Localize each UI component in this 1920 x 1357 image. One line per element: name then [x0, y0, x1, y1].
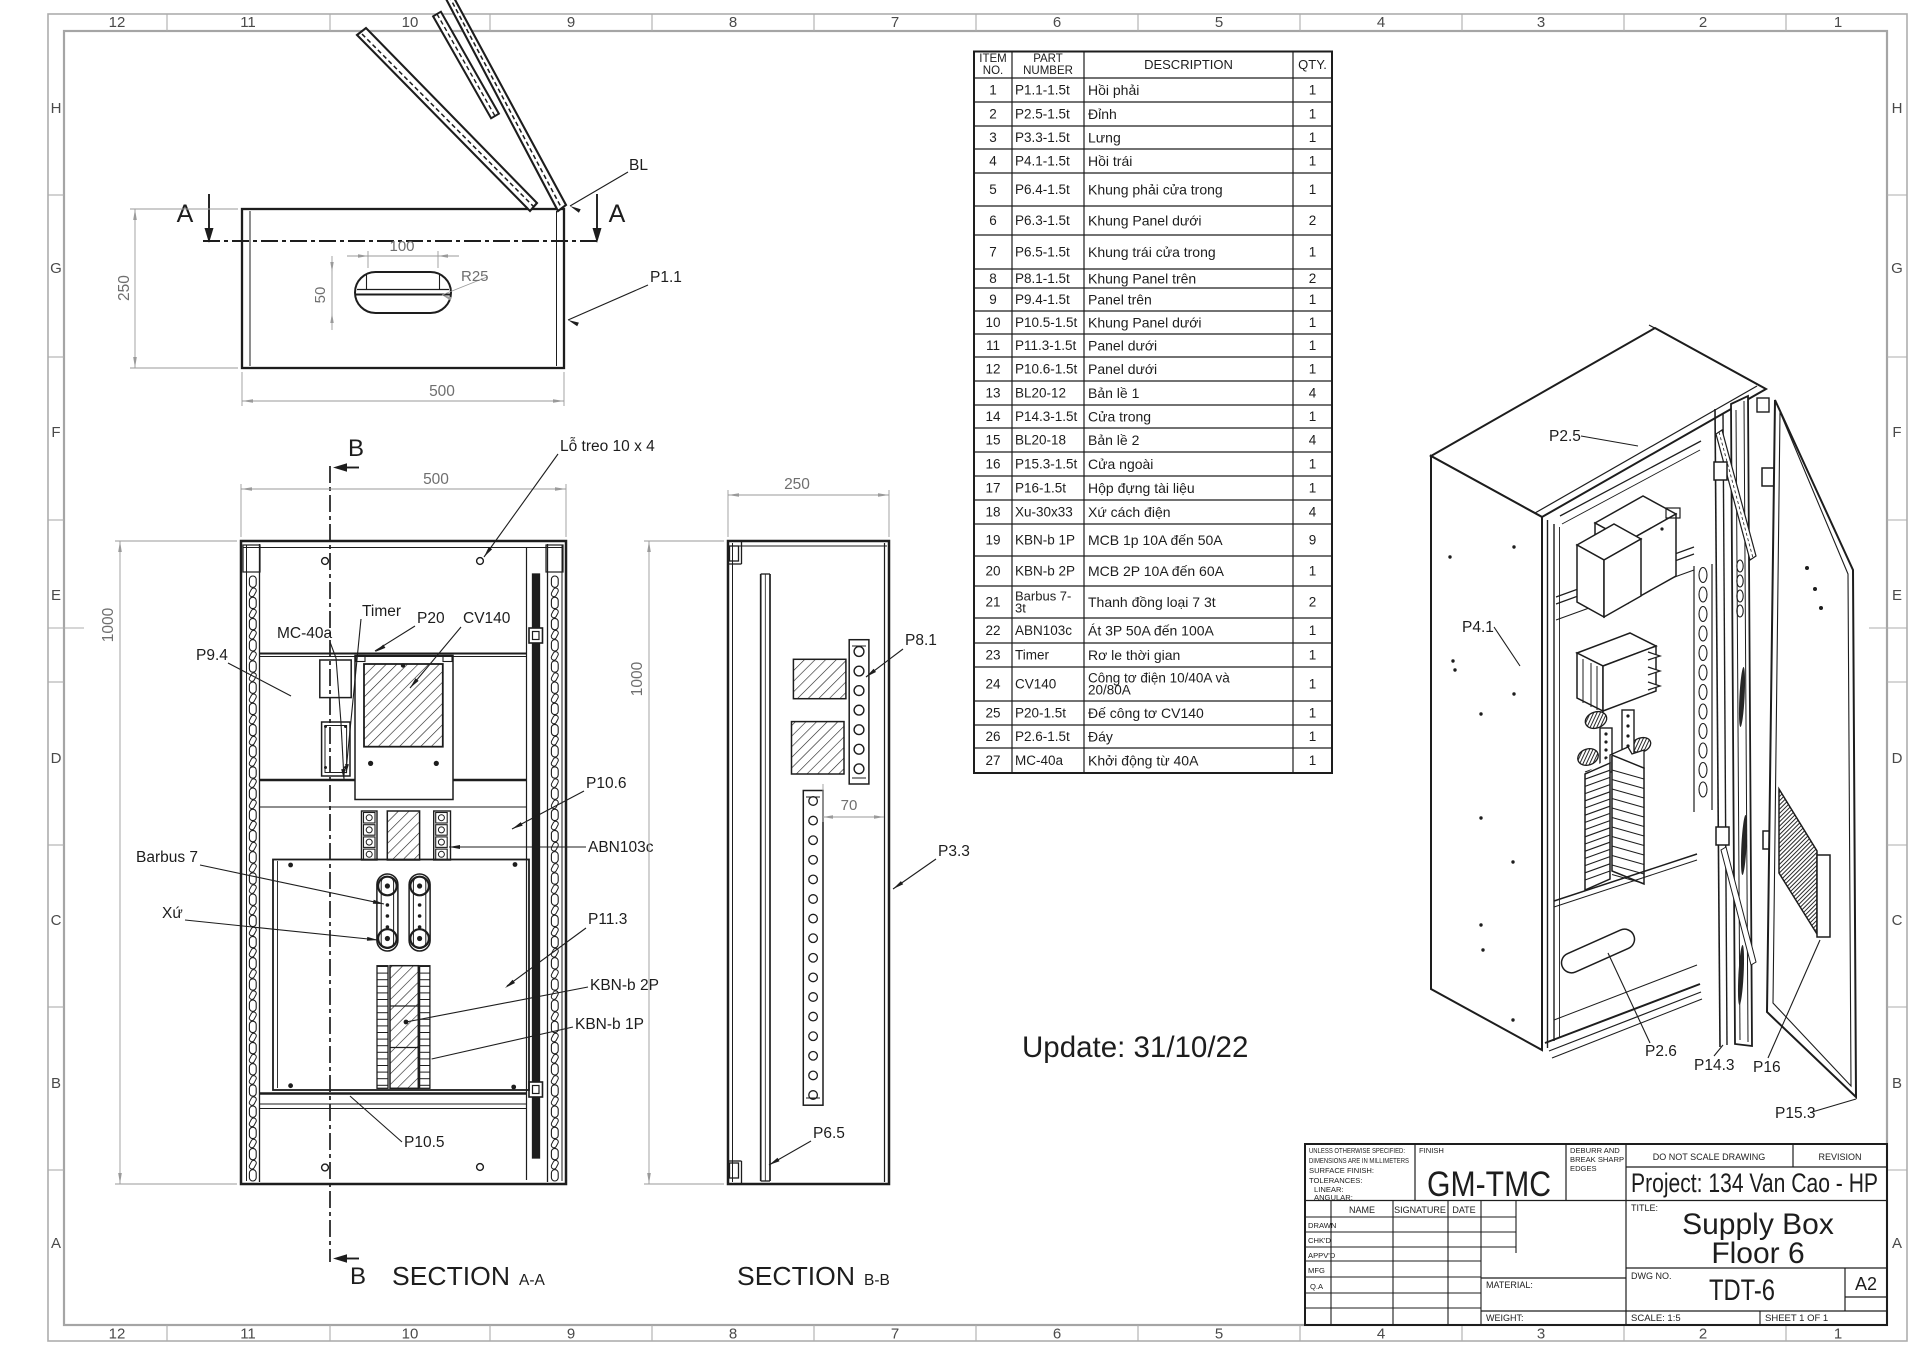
svg-text:Khởi động từ 40A: Khởi động từ 40A	[1088, 752, 1199, 768]
svg-text:P8.1-1.5t: P8.1-1.5t	[1015, 271, 1070, 286]
svg-text:P1.1-1.5t: P1.1-1.5t	[1015, 83, 1070, 98]
svg-text:8: 8	[729, 14, 737, 31]
svg-text:P9.4: P9.4	[196, 647, 228, 664]
svg-text:NUMBER: NUMBER	[1023, 65, 1073, 77]
svg-text:15: 15	[985, 433, 1000, 448]
svg-text:SHEET 1 OF 1: SHEET 1 OF 1	[1765, 1313, 1828, 1324]
svg-text:Át 3P 50A đến 100A: Át 3P 50A đến 100A	[1088, 622, 1215, 638]
svg-text:E: E	[1892, 587, 1902, 604]
svg-text:Lưng: Lưng	[1088, 129, 1121, 145]
svg-text:Project: 134 Van Cao - HP: Project: 134 Van Cao - HP	[1631, 1168, 1878, 1198]
svg-text:70: 70	[841, 797, 858, 814]
svg-text:B: B	[1892, 1075, 1902, 1092]
svg-text:250: 250	[116, 275, 133, 301]
svg-text:500: 500	[429, 383, 455, 400]
svg-text:P6.4-1.5t: P6.4-1.5t	[1015, 182, 1070, 197]
svg-text:P4.1-1.5t: P4.1-1.5t	[1015, 154, 1070, 169]
svg-text:17: 17	[985, 481, 1000, 496]
svg-text:Khung phải cửa trong: Khung phải cửa trong	[1088, 181, 1223, 197]
svg-text:Bản lề 1: Bản lề 1	[1088, 385, 1140, 401]
svg-text:GM-TMC: GM-TMC	[1427, 1165, 1551, 1204]
svg-text:P10.5-1.5t: P10.5-1.5t	[1015, 315, 1078, 330]
svg-text:G: G	[50, 260, 62, 277]
svg-text:500: 500	[423, 471, 449, 488]
svg-text:WEIGHT:: WEIGHT:	[1486, 1313, 1524, 1323]
svg-text:BL20-12: BL20-12	[1015, 386, 1066, 401]
svg-text:FINISH: FINISH	[1419, 1146, 1444, 1155]
svg-text:10: 10	[402, 1326, 419, 1343]
svg-text:2: 2	[1699, 1326, 1707, 1343]
svg-text:1: 1	[1309, 409, 1317, 424]
svg-text:TITLE:: TITLE:	[1631, 1203, 1658, 1213]
svg-text:1: 1	[1309, 315, 1317, 330]
svg-text:5: 5	[1215, 1326, 1223, 1343]
svg-text:25: 25	[985, 706, 1000, 721]
svg-text:Hồi trái: Hồi trái	[1088, 153, 1132, 169]
svg-text:10: 10	[985, 315, 1000, 330]
svg-text:ITEM: ITEM	[979, 53, 1006, 65]
svg-text:DO NOT SCALE DRAWING: DO NOT SCALE DRAWING	[1653, 1152, 1766, 1162]
svg-text:1: 1	[1309, 753, 1317, 768]
svg-text:22: 22	[985, 623, 1000, 638]
svg-text:9: 9	[989, 292, 997, 307]
svg-text:2: 2	[1309, 271, 1317, 286]
svg-text:F: F	[51, 424, 60, 441]
svg-text:12: 12	[109, 1326, 126, 1343]
svg-text:EDGES: EDGES	[1570, 1164, 1597, 1173]
svg-text:1: 1	[1309, 362, 1317, 377]
svg-text:Đáy: Đáy	[1088, 728, 1113, 744]
svg-text:P16-1.5t: P16-1.5t	[1015, 481, 1066, 496]
svg-text:50: 50	[312, 287, 329, 304]
svg-text:P2.5: P2.5	[1549, 428, 1581, 445]
svg-text:9: 9	[1309, 533, 1317, 548]
svg-text:6: 6	[1053, 14, 1061, 31]
svg-text:SIGNATURE: SIGNATURE	[1394, 1205, 1446, 1215]
svg-text:A: A	[609, 200, 626, 228]
svg-text:Panel trên: Panel trên	[1088, 291, 1152, 307]
svg-text:1: 1	[1309, 83, 1317, 98]
svg-text:NAME: NAME	[1349, 1205, 1375, 1215]
svg-text:26: 26	[985, 729, 1000, 744]
svg-text:20/80A: 20/80A	[1088, 683, 1131, 698]
svg-text:H: H	[51, 100, 62, 117]
svg-text:DIMENSIONS ARE IN MILLIMETERS: DIMENSIONS ARE IN MILLIMETERS	[1309, 1156, 1409, 1165]
svg-text:1: 1	[1309, 245, 1317, 260]
svg-text:KBN-b 2P: KBN-b 2P	[1015, 564, 1075, 579]
svg-text:DESCRIPTION: DESCRIPTION	[1144, 57, 1233, 72]
svg-text:G: G	[1891, 260, 1903, 277]
svg-text:Hồi phải: Hồi phải	[1088, 82, 1139, 98]
svg-text:Khung Panel dưới: Khung Panel dưới	[1088, 314, 1202, 330]
svg-text:Cửa ngoài: Cửa ngoài	[1088, 456, 1153, 472]
svg-text:A: A	[1892, 1235, 1902, 1252]
svg-text:4: 4	[1309, 433, 1317, 448]
svg-text:7: 7	[891, 14, 899, 31]
svg-text:MCB 2P 10A đến 60A: MCB 2P 10A đến 60A	[1088, 563, 1225, 579]
svg-text:MCB 1p 10A đến 50A: MCB 1p 10A đến 50A	[1088, 532, 1223, 548]
svg-text:Panel dưới: Panel dưới	[1088, 361, 1157, 377]
svg-text:MATERIAL:: MATERIAL:	[1486, 1280, 1533, 1290]
svg-text:B-B: B-B	[864, 1272, 890, 1289]
svg-text:KBN-b 1P: KBN-b 1P	[575, 1016, 644, 1033]
svg-text:1: 1	[1309, 130, 1317, 145]
svg-text:MFG: MFG	[1308, 1266, 1325, 1275]
svg-text:5: 5	[989, 182, 997, 197]
svg-text:10: 10	[402, 14, 419, 31]
svg-text:1: 1	[1309, 677, 1317, 692]
svg-text:SECTION: SECTION	[737, 1261, 855, 1291]
svg-text:NO.: NO.	[983, 65, 1003, 77]
svg-text:1: 1	[1309, 292, 1317, 307]
svg-text:Bản lề 2: Bản lề 2	[1088, 432, 1140, 448]
svg-text:Lỗ treo 10 x 4: Lỗ treo 10 x 4	[560, 438, 655, 455]
svg-text:12: 12	[109, 14, 126, 31]
svg-text:R25: R25	[461, 268, 489, 285]
svg-text:8: 8	[989, 271, 997, 286]
svg-text:1: 1	[1309, 338, 1317, 353]
svg-text:3: 3	[989, 130, 997, 145]
svg-text:11: 11	[240, 14, 256, 31]
svg-text:D: D	[51, 750, 62, 767]
svg-text:APPV'D: APPV'D	[1308, 1251, 1336, 1260]
svg-text:18: 18	[985, 505, 1000, 520]
svg-text:P2.6: P2.6	[1645, 1043, 1677, 1060]
svg-text:3t: 3t	[1015, 601, 1026, 616]
svg-text:SCALE: 1:5: SCALE: 1:5	[1631, 1313, 1681, 1324]
svg-text:Hộp đựng tài liệu: Hộp đựng tài liệu	[1088, 480, 1195, 496]
svg-text:Timer: Timer	[1015, 648, 1049, 663]
svg-text:BREAK SHARP: BREAK SHARP	[1570, 1155, 1624, 1164]
svg-text:Update: 31/10/22: Update: 31/10/22	[1022, 1031, 1248, 1064]
svg-text:CV140: CV140	[1015, 677, 1056, 692]
svg-text:9: 9	[567, 1326, 575, 1343]
svg-text:B: B	[350, 1263, 366, 1290]
svg-text:SECTION: SECTION	[392, 1261, 510, 1291]
svg-text:MC-40a: MC-40a	[277, 625, 333, 642]
svg-text:P11.3: P11.3	[588, 911, 627, 928]
svg-text:P3.3-1.5t: P3.3-1.5t	[1015, 130, 1070, 145]
svg-text:7: 7	[891, 1326, 899, 1343]
svg-text:P10.5: P10.5	[404, 1134, 445, 1151]
svg-text:REVISION: REVISION	[1818, 1152, 1861, 1162]
svg-text:P10.6: P10.6	[586, 775, 627, 792]
svg-text:9: 9	[567, 14, 575, 31]
svg-text:1: 1	[1309, 706, 1317, 721]
svg-text:P3.3: P3.3	[938, 843, 970, 860]
svg-text:1: 1	[1309, 154, 1317, 169]
svg-text:MC-40a: MC-40a	[1015, 753, 1064, 768]
svg-text:7: 7	[989, 245, 997, 260]
svg-text:1: 1	[1834, 14, 1842, 31]
svg-text:2: 2	[1309, 213, 1317, 228]
svg-text:E: E	[51, 587, 61, 604]
svg-text:Cửa trong: Cửa trong	[1088, 408, 1151, 424]
svg-text:UNLESS OTHERWISE SPECIFIED:: UNLESS OTHERWISE SPECIFIED:	[1309, 1146, 1405, 1155]
svg-text:B: B	[51, 1075, 61, 1092]
svg-text:8: 8	[729, 1326, 737, 1343]
svg-text:2: 2	[1309, 595, 1317, 610]
svg-text:Q.A: Q.A	[1310, 1282, 1324, 1291]
svg-text:Đế công tơ CV140: Đế công tơ CV140	[1088, 705, 1204, 721]
svg-text:D: D	[1892, 750, 1903, 767]
svg-text:Floor 6: Floor 6	[1711, 1237, 1804, 1270]
svg-text:1: 1	[989, 83, 997, 98]
svg-text:11: 11	[240, 1326, 256, 1343]
svg-text:TOLERANCES:: TOLERANCES:	[1309, 1176, 1362, 1185]
svg-text:B: B	[348, 435, 364, 462]
svg-text:1: 1	[1309, 457, 1317, 472]
svg-text:5: 5	[1215, 14, 1223, 31]
svg-text:C: C	[1892, 912, 1903, 929]
svg-text:11: 11	[986, 338, 1000, 353]
svg-text:4: 4	[1309, 505, 1317, 520]
svg-text:TDT-6: TDT-6	[1709, 1274, 1775, 1307]
svg-text:P20-1.5t: P20-1.5t	[1015, 706, 1066, 721]
svg-text:16: 16	[985, 457, 1000, 472]
svg-text:14: 14	[985, 409, 1001, 424]
svg-text:6: 6	[989, 213, 997, 228]
svg-text:P15.3: P15.3	[1775, 1105, 1816, 1122]
svg-text:A: A	[177, 200, 194, 228]
svg-text:Khung Panel trên: Khung Panel trên	[1088, 270, 1196, 286]
svg-text:P10.6-1.5t: P10.6-1.5t	[1015, 362, 1078, 377]
svg-text:3: 3	[1537, 14, 1545, 31]
svg-text:6: 6	[1053, 1326, 1061, 1343]
svg-text:19: 19	[985, 533, 1000, 548]
svg-text:Xứ cách điện: Xứ cách điện	[1088, 504, 1171, 520]
svg-text:13: 13	[985, 386, 1000, 401]
svg-text:1: 1	[1309, 564, 1317, 579]
svg-text:BL: BL	[629, 157, 648, 174]
svg-text:H: H	[1892, 100, 1903, 117]
svg-text:24: 24	[985, 677, 1001, 692]
svg-text:20: 20	[985, 564, 1000, 579]
svg-text:A2: A2	[1855, 1274, 1877, 1294]
svg-text:27: 27	[985, 753, 1000, 768]
svg-text:Khung trái cửa trong: Khung trái cửa trong	[1088, 244, 1216, 260]
svg-text:Xu-30x33: Xu-30x33	[1015, 505, 1073, 520]
svg-text:CHK'D: CHK'D	[1308, 1236, 1331, 1245]
svg-text:ABN103c: ABN103c	[1015, 623, 1072, 638]
svg-text:P9.4-1.5t: P9.4-1.5t	[1015, 292, 1070, 307]
svg-text:BL20-18: BL20-18	[1015, 433, 1066, 448]
svg-text:21: 21	[985, 595, 1000, 610]
svg-text:Thanh đồng loại 7 3t: Thanh đồng loại 7 3t	[1088, 594, 1216, 610]
svg-text:A: A	[51, 1235, 61, 1252]
svg-text:Rơ le thời gian: Rơ le thời gian	[1088, 647, 1180, 663]
svg-text:P16: P16	[1753, 1059, 1781, 1076]
svg-text:Timer: Timer	[362, 603, 401, 620]
svg-text:P6.5: P6.5	[813, 1125, 845, 1142]
svg-text:C: C	[51, 912, 62, 929]
svg-text:12: 12	[985, 362, 1000, 377]
svg-text:1: 1	[1309, 729, 1317, 744]
svg-text:Barbus 7: Barbus 7	[136, 849, 198, 866]
svg-text:4: 4	[989, 154, 997, 169]
svg-text:P14.3-1.5t: P14.3-1.5t	[1015, 409, 1078, 424]
svg-text:1: 1	[1309, 182, 1317, 197]
svg-text:Đỉnh: Đỉnh	[1088, 106, 1117, 122]
svg-text:1: 1	[1309, 623, 1317, 638]
svg-text:P15.3-1.5t: P15.3-1.5t	[1015, 457, 1078, 472]
svg-text:23: 23	[985, 648, 1000, 663]
svg-text:CV140: CV140	[463, 610, 511, 627]
svg-text:P2.5-1.5t: P2.5-1.5t	[1015, 107, 1070, 122]
svg-text:2: 2	[989, 107, 997, 122]
svg-text:P6.3-1.5t: P6.3-1.5t	[1015, 213, 1070, 228]
svg-text:SURFACE FINISH:: SURFACE FINISH:	[1309, 1166, 1374, 1175]
svg-text:KBN-b 1P: KBN-b 1P	[1015, 533, 1075, 548]
svg-text:P20: P20	[417, 610, 445, 627]
svg-text:ANGULAR:: ANGULAR:	[1314, 1193, 1353, 1202]
svg-text:1: 1	[1309, 107, 1317, 122]
svg-text:DEBURR AND: DEBURR AND	[1570, 1146, 1620, 1155]
svg-text:1: 1	[1309, 481, 1317, 496]
svg-text:P4.1: P4.1	[1462, 619, 1494, 636]
svg-text:P2.6-1.5t: P2.6-1.5t	[1015, 729, 1070, 744]
svg-text:1000: 1000	[100, 607, 117, 642]
svg-text:DWG NO.: DWG NO.	[1631, 1271, 1672, 1281]
svg-text:1: 1	[1834, 1326, 1842, 1343]
svg-text:QTY.: QTY.	[1298, 57, 1327, 72]
svg-text:P11.3-1.5t: P11.3-1.5t	[1015, 338, 1077, 353]
svg-text:PART: PART	[1033, 53, 1063, 65]
svg-text:P8.1: P8.1	[905, 632, 937, 649]
svg-text:ABN103c: ABN103c	[588, 839, 654, 856]
svg-text:DATE: DATE	[1452, 1205, 1475, 1215]
svg-text:1000: 1000	[629, 661, 646, 696]
svg-text:Xứ: Xứ	[162, 905, 183, 922]
svg-text:4: 4	[1377, 1326, 1385, 1343]
svg-text:P1.1: P1.1	[650, 269, 682, 286]
svg-text:DRAWN: DRAWN	[1308, 1221, 1336, 1230]
svg-text:P14.3: P14.3	[1694, 1057, 1735, 1074]
svg-text:A-A: A-A	[519, 1272, 546, 1289]
svg-text:4: 4	[1377, 14, 1385, 31]
svg-text:F: F	[1892, 424, 1901, 441]
svg-text:4: 4	[1309, 386, 1317, 401]
svg-text:Khung Panel dưới: Khung Panel dưới	[1088, 212, 1202, 228]
svg-text:2: 2	[1699, 14, 1707, 31]
svg-text:Panel dưới: Panel dưới	[1088, 337, 1157, 353]
svg-text:3: 3	[1537, 1326, 1545, 1343]
svg-text:250: 250	[784, 476, 810, 493]
svg-text:100: 100	[389, 238, 414, 255]
svg-text:1: 1	[1309, 648, 1317, 663]
svg-text:P6.5-1.5t: P6.5-1.5t	[1015, 245, 1070, 260]
